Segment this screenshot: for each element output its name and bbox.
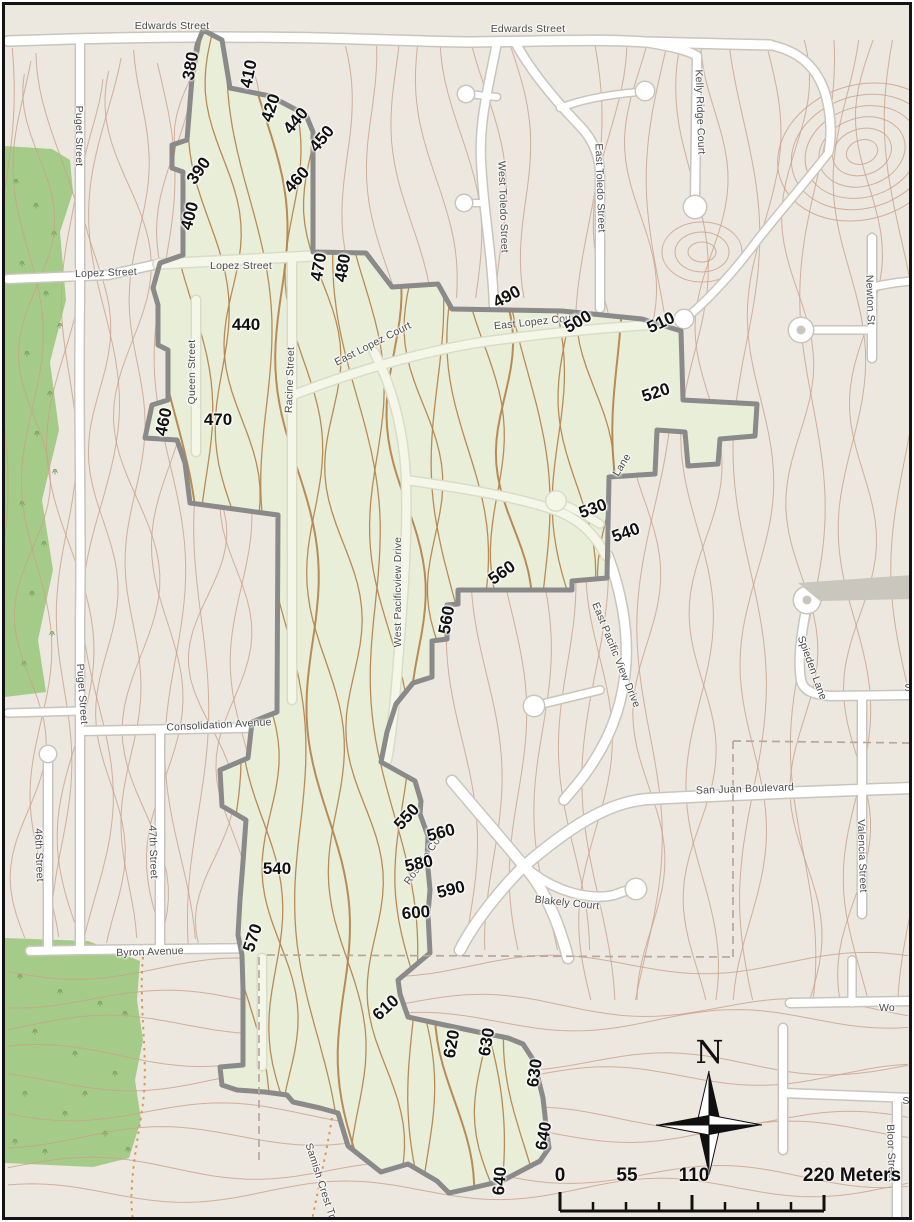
scale-label: 55: [616, 1165, 637, 1187]
scale-label: 220 Meters: [803, 1165, 901, 1187]
north-arrow: N: [647, 1033, 772, 1183]
map-canvas: [5, 5, 909, 1217]
scale-bar: 055110220 Meters: [545, 1165, 905, 1220]
forest-areas: [5, 146, 143, 1167]
scale-label: 110: [679, 1165, 710, 1187]
topographic-map: Edwards StreetEdwards StreetPuget Street…: [2, 2, 912, 1220]
scale-label: 0: [555, 1165, 566, 1187]
compass-rose-icon: [647, 1033, 772, 1183]
